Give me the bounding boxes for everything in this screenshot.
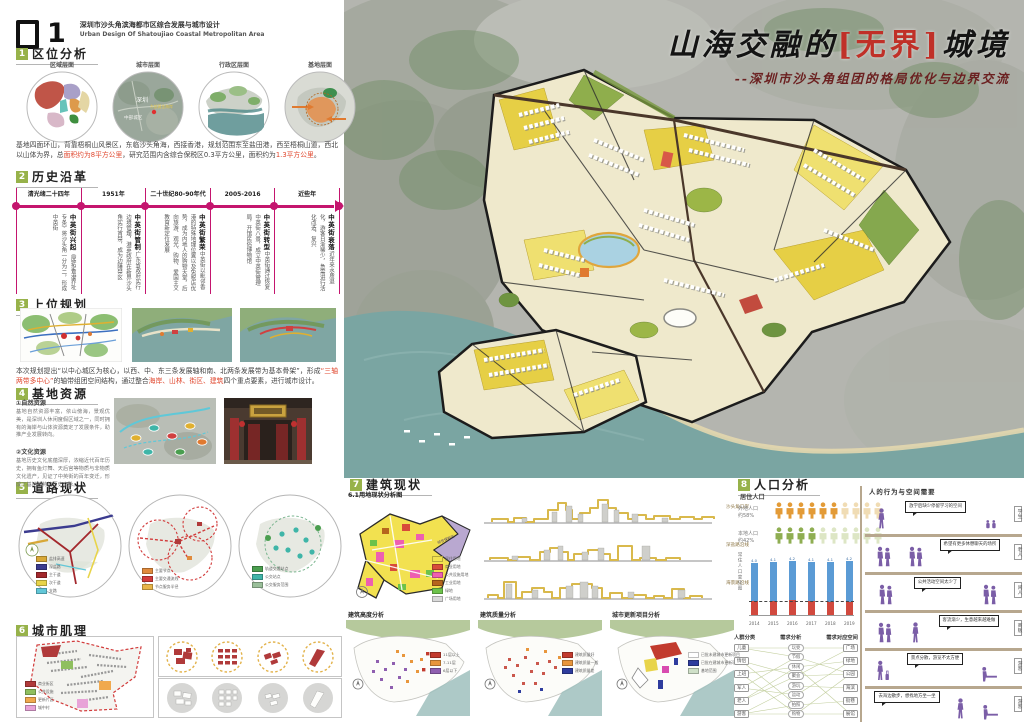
transit-map-legend: 轨道交通站点公交站点公交服务范围 <box>252 566 308 590</box>
network-demand-node: 玩耍 <box>788 644 805 652</box>
transit-legend-label: 公交服务范围 <box>265 582 288 588</box>
traffic-legend-swatch <box>142 584 153 590</box>
bar-registered <box>751 601 758 615</box>
landuse-legend-row: 绿地 <box>432 588 478 594</box>
resource-map <box>114 398 216 464</box>
bar-registered <box>770 601 777 615</box>
person-silhouette-icon <box>877 584 894 610</box>
network-space-node: 街巷 <box>843 697 858 705</box>
road-legend-label: 次干道 <box>49 580 61 586</box>
fabric-legend-swatch <box>25 705 36 711</box>
person-silhouette-icon <box>980 665 1000 686</box>
location-paragraph: 基地四面环山，背靠梧桐山风景区，东临沙头角海，西接香港，规划范围东至盐田港，西至… <box>16 140 338 160</box>
landuse-legend-label: 公共设施用地 <box>445 572 468 578</box>
quality-legend-swatch <box>562 660 573 666</box>
transit-legend-label: 公交站点 <box>265 574 281 580</box>
fabric-legend-label: 公共设施 <box>38 689 54 695</box>
quality-legend: 建筑质量好建筑质量一般建筑质量差 <box>562 652 604 676</box>
timeline-dot <box>141 202 149 210</box>
landuse-legend: 居住用地商业用地公共设施用地工业用地绿地广场用地 <box>432 556 478 604</box>
fabric-legend-label: 商业街区 <box>38 681 54 687</box>
bar-group: 4.0 <box>749 553 759 615</box>
north-arrow-icon <box>356 680 360 686</box>
fabric-pattern-3 <box>256 640 290 674</box>
pictogram-percent: 约58% <box>738 513 774 520</box>
upper-plan-paragraph-text: 四个重点要素，进行城市设计。 <box>223 377 318 385</box>
pictogram-label: 本地人口约42% <box>738 531 774 545</box>
fabric-legend-row: 更新片区 <box>25 697 75 703</box>
road-legend-row: 支路 <box>36 588 82 594</box>
landuse-legend-row: 广场用地 <box>432 596 478 602</box>
person-icon <box>829 527 840 548</box>
pictogram-group-name: 本地人口 <box>738 531 774 538</box>
network-space-node: 广场 <box>843 644 858 652</box>
network-demand-node: 拍照 <box>788 701 805 709</box>
road-legend-row: 盐排高速 <box>36 556 82 562</box>
road-legend-swatch <box>36 572 47 578</box>
landuse-legend-label: 工业用地 <box>445 580 461 586</box>
speech-bubble: 去海边散步，想找地方坐一坐 <box>874 691 939 703</box>
person-icon <box>818 502 829 523</box>
bar-group: 4.1 <box>825 553 835 615</box>
behavior-tag: 游客 <box>1014 696 1022 712</box>
renewal-legend-swatch <box>688 652 699 658</box>
quality-legend-row: 建筑质量好 <box>562 652 604 658</box>
network-space-node: 公园 <box>843 670 858 678</box>
person-silhouette-icon <box>875 546 892 572</box>
timeline-column: 2005-2016中英街转型中英街通过恢复中英街八景，成立中英街管理局，开馆民俗… <box>211 188 276 294</box>
temple-photo <box>224 398 312 464</box>
traffic-legend-swatch <box>142 568 153 574</box>
person-silhouette-icon <box>984 515 999 534</box>
road-legend-row: 次干道 <box>36 580 82 586</box>
bar-year-label: 2017 <box>806 621 816 626</box>
quality-legend-swatch <box>562 652 573 658</box>
elevation-strip-2 <box>482 530 722 564</box>
behavior-row: 去海边散步，想找地方坐一坐游客 <box>865 689 1022 723</box>
road-legend-swatch <box>36 588 47 594</box>
road-legend-row: 深盐路 <box>36 564 82 570</box>
elevation-strip-1 <box>482 492 722 526</box>
section-2-header: 2历史沿革 <box>16 168 98 188</box>
population-bar-chart: 常住人口变化图 4.04.14.24.14.14.2 2014201520162… <box>736 550 856 628</box>
road-legend-label: 主干道 <box>49 572 61 578</box>
road-legend-swatch <box>36 564 47 570</box>
bar-resident <box>751 563 758 600</box>
timeline-period: 清光绪二十四年 <box>17 188 81 203</box>
height-legend: 11层以上7-11层6层以下 <box>430 652 470 676</box>
timeline-dot <box>12 202 20 210</box>
timeline-column: 1951年中英街管制广东省政府实行边境管理，港英政府在新界沙头角实行宵禁，成为边… <box>82 188 147 294</box>
fabric-pattern-1 <box>165 640 199 674</box>
landuse-legend-label: 居住用地 <box>445 556 461 562</box>
location-paragraph-highlight: 面积约为8平方公里 <box>64 151 123 159</box>
traffic-legend-swatch <box>142 576 153 582</box>
fabric-legend-swatch <box>25 697 36 703</box>
behavior-row: 景点分散，游览不太方便游客 <box>865 651 1022 689</box>
transit-legend-row: 轨道交通站点 <box>252 566 308 572</box>
traffic-legend-row: 主要交通流线 <box>142 576 198 582</box>
speech-bubble: 景点分散，游览不太方便 <box>907 653 963 665</box>
speech-bubble: 客流渐少，生意越来越难做 <box>939 615 1000 627</box>
fabric-legend-swatch <box>25 689 36 695</box>
person-silhouette-icon <box>981 703 1001 723</box>
network-space-node: 海滨 <box>843 684 858 692</box>
analysis-title-1: 建筑高度分析 <box>348 610 384 619</box>
svg-text:东部黄金海岸: 东部黄金海岸 <box>150 104 173 109</box>
speech-bubble: 希望有更多休憩聊天的场所 <box>940 539 1001 551</box>
pictogram-group-name: 外地人口 <box>738 506 774 513</box>
bar-resident <box>846 561 853 602</box>
behavior-people: 放学后缺少停留学习的空间 <box>868 499 1007 534</box>
massing-1 <box>166 682 198 714</box>
massing-box <box>158 678 342 718</box>
bar-year-label: 2014 <box>749 621 759 626</box>
behavior-header: 人的行为与空间需要 <box>869 487 1022 496</box>
traffic-legend-row: 节点服务半径 <box>142 584 198 590</box>
timeline-era-name: 中英街管制 <box>133 214 141 251</box>
timeline-body: 中英街繁荣中英街以毗邻香港的特殊地理位置以及免税店优势，成为内地人的购物天堂，后… <box>148 214 207 292</box>
demand-network: 人群分类 需求分析 需求对应空间 儿童情侣上班军人老人游客 玩耍节假休闲聚会游玩… <box>734 633 858 721</box>
fabric-legend-row: 商业街区 <box>25 681 75 687</box>
height-legend-label: 6层以下 <box>443 668 457 674</box>
transit-legend-swatch <box>252 574 263 580</box>
timeline-period: 1951年 <box>82 188 146 203</box>
sheet-number-one: 1 <box>47 20 66 47</box>
renewal-legend-row: 已批在建城市更新项目 <box>688 660 734 666</box>
network-demand-node: 游玩 <box>788 682 805 690</box>
behavior-row: 公共活动空间太少了闲人 <box>865 575 1022 613</box>
upper-plan-thumb-1 <box>20 308 122 362</box>
bar-registered <box>846 602 853 615</box>
quality-legend-label: 建筑质量差 <box>575 668 594 674</box>
traffic-map-legend: 主要节点主要交通流线节点服务半径 <box>142 568 198 592</box>
height-legend-row: 7-11层 <box>430 660 470 666</box>
height-legend-swatch <box>430 652 441 658</box>
pictogram-label: 外地人口约58% <box>738 506 774 520</box>
bar-resident <box>789 561 796 600</box>
road-legend-label: 深盐路 <box>49 564 61 570</box>
timeline-body: 中英街兴起《展拓香港界址专条》将沙头角一分为二，形成中英街 <box>19 214 78 292</box>
behavior-tag: 游客 <box>1014 658 1022 674</box>
district-map <box>198 71 270 143</box>
fabric-legend-label: 城中村 <box>38 705 50 711</box>
chart-bars: 4.04.14.24.14.14.2 <box>749 553 854 616</box>
renewal-legend-label: 基地范围 <box>701 668 717 674</box>
timeline-era-name: 中英街繁荣 <box>198 214 206 251</box>
network-group-node: 情侣 <box>734 657 749 665</box>
landuse-legend-label: 商业用地 <box>445 564 461 570</box>
renewal-legend-row: 已批未建城市更新项目 <box>688 652 734 658</box>
upper-plan-paragraph: 本次规划提出“以中心城区为核心，以西、中、东三条发展轴和南、北两条发展带为基本骨… <box>16 366 338 386</box>
person-icon <box>840 527 851 548</box>
fabric-pattern-2 <box>210 640 244 674</box>
road-legend-label: 支路 <box>49 588 57 594</box>
traffic-legend-label: 节点服务半径 <box>155 584 178 590</box>
bar-resident <box>770 562 777 601</box>
chart-x-labels: 201420152016201720182019 <box>749 621 854 626</box>
person-icon <box>807 527 818 548</box>
fabric-pattern-4 <box>301 640 335 674</box>
quality-legend-row: 建筑质量差 <box>562 668 604 674</box>
behavior-rows: 放学后缺少停留学习的空间学生希望有更多休憩聊天的场所老人公共活动空间太少了闲人客… <box>865 499 1022 723</box>
timeline-column: 清光绪二十四年中英街兴起《展拓香港界址专条》将沙头角一分为二，形成中英街 <box>16 188 82 294</box>
bar-year-label: 2015 <box>768 621 778 626</box>
landuse-legend-row: 居住用地 <box>432 556 478 562</box>
person-icon <box>796 527 807 548</box>
massing-4 <box>302 682 334 714</box>
timeline-dot <box>77 202 85 210</box>
landuse-legend-row: 商业用地 <box>432 564 478 570</box>
height-legend-label: 11层以上 <box>443 652 460 658</box>
traffic-legend-row: 主要节点 <box>142 568 198 574</box>
person-icon <box>840 502 851 523</box>
network-demand-node: 聚会 <box>788 672 805 680</box>
location-paragraph-text: 。 <box>314 151 321 159</box>
person-icon <box>796 502 807 523</box>
road-legend-swatch <box>36 580 47 586</box>
resident-population-label: 居住人口 <box>740 492 765 501</box>
cultural-resource-item: ②文化资源 基地历史文化底蕴深厚，浓缩近代百年历史，拥有鱼灯舞、天后宫等物质与非… <box>16 447 110 489</box>
upper-plan-thumb-2 <box>132 308 232 362</box>
quality-legend-label: 建筑质量一般 <box>575 660 598 666</box>
network-demand-node: 休闲 <box>788 663 805 671</box>
behavior-tag: 老人 <box>1014 544 1022 560</box>
natural-resource-item: ①自然资源 基地自然资源丰富，依山傍海，景观优美，是深圳人休闲度假区域之一，同时… <box>16 398 110 440</box>
analysis-title-2: 建筑质量分析 <box>480 610 516 619</box>
bar-registered <box>827 602 834 615</box>
project-title-en: Urban Design Of Shatoujiao Coastal Metro… <box>80 31 265 38</box>
behavior-row: 放学后缺少停留学习的空间学生 <box>865 499 1022 537</box>
landuse-legend-label: 绿地 <box>445 588 453 594</box>
person-silhouette-icon <box>907 546 924 572</box>
elevation-strip-3 <box>482 568 722 602</box>
quality-legend-row: 建筑质量一般 <box>562 660 604 666</box>
person-icon <box>807 502 818 523</box>
person-silhouette-icon <box>876 622 893 648</box>
history-timeline: 清光绪二十四年中英街兴起《展拓香港界址专条》将沙头角一分为二，形成中英街1951… <box>16 188 340 294</box>
renewal-legend-row: 基地范围 <box>688 668 734 674</box>
fabric-legend-swatch <box>25 681 36 687</box>
location-circle-site: 基地层面 <box>280 60 360 147</box>
network-demand-node: 节假 <box>788 653 805 661</box>
city-map: 深圳 中部城区 东部黄金海岸 <box>112 71 184 143</box>
north-arrow-icon <box>488 680 492 686</box>
road-map-legend: 盐排高速深盐路主干道次干道支路 <box>36 556 82 596</box>
network-group-node: 老人 <box>734 697 749 705</box>
network-mid-column: 玩耍节假休闲聚会游玩运动拍照购物 <box>788 644 805 718</box>
timeline-column: 二十世纪80-90年代中英街繁荣中英街以毗邻香港的特殊地理位置以及免税店优势，成… <box>146 188 211 294</box>
height-legend-row: 6层以下 <box>430 668 470 674</box>
bar-resident <box>827 562 834 602</box>
north-arrow-icon <box>620 680 624 686</box>
landuse-map-label: 6.1用地现状分析图 <box>348 490 402 499</box>
person-icon <box>829 502 840 523</box>
bar-group: 4.1 <box>806 553 816 615</box>
bar-resident <box>808 562 815 601</box>
behavior-people: 客流渐少，生意越来越难做 <box>868 613 1007 648</box>
massing-row <box>159 679 341 717</box>
height-legend-swatch <box>430 668 441 674</box>
transit-legend-label: 轨道交通站点 <box>265 566 288 572</box>
timeline-era-name: 中英街兴起 <box>69 214 77 251</box>
location-circle-region: 区域层面 <box>22 60 102 147</box>
network-right-column: 广场绿地公园海滨街巷展馆 <box>843 644 858 718</box>
bar-group: 4.1 <box>768 553 778 615</box>
network-group-node: 上班 <box>734 670 749 678</box>
timeline-body: 中英街管制广东省政府实行边境管理，港英政府在新界沙头角实行宵禁，成为边陲禁区 <box>84 214 143 292</box>
analysis-title-3: 城市更新项目分析 <box>612 610 660 619</box>
person-icon <box>785 527 796 548</box>
poster-subtitle: --深圳市沙头角组团的格局优化与边界交流 <box>668 68 1010 87</box>
fabric-pattern-box <box>158 636 342 677</box>
transit-legend-row: 公交站点 <box>252 574 308 580</box>
bar-group: 4.2 <box>844 553 854 615</box>
height-legend-swatch <box>430 660 441 666</box>
timeline-axis <box>16 205 334 208</box>
project-title-cn: 深圳市沙头角滨海都市区综合发展与城市设计 <box>80 20 265 31</box>
behavior-panel: 人的行为与空间需要 放学后缺少停留学习的空间学生希望有更多休憩聊天的场所老人公共… <box>860 486 1022 722</box>
landuse-legend-label: 广场用地 <box>445 596 461 602</box>
network-demand-node: 运动 <box>788 691 805 699</box>
fabric-legend-row: 公共设施 <box>25 689 75 695</box>
renewal-legend: 已批未建城市更新项目已批在建城市更新项目基地范围 <box>688 652 734 676</box>
poster-board: 山海交融的[无界]城境 --深圳市沙头角组团的格局优化与边界交流 1 深圳市沙头… <box>0 0 1024 723</box>
network-group-node: 儿童 <box>734 644 749 652</box>
resource-texts: ①自然资源 基地自然资源丰富，依山傍海，景观优美，是深圳人休闲度假区域之一，同时… <box>16 398 110 496</box>
upper-plan-paragraph-text: 的轴带组团空间结构，通过整合 <box>54 377 149 385</box>
region-map <box>26 71 98 143</box>
fabric-legend-row: 城中村 <box>25 705 75 711</box>
transit-legend-swatch <box>252 566 263 572</box>
quality-legend-swatch <box>562 668 573 674</box>
timeline-era-name: 中英街衰落 <box>327 214 335 251</box>
bar-group: 4.2 <box>787 553 797 615</box>
location-circle-district: 行政区层面 <box>194 60 274 147</box>
behavior-row: 希望有更多休憩聊天的场所老人 <box>865 537 1022 575</box>
transit-legend-swatch <box>252 582 263 588</box>
timeline-columns: 清光绪二十四年中英街兴起《展拓香港界址专条》将沙头角一分为二，形成中英街1951… <box>16 188 340 294</box>
pictogram-percent: 约42% <box>738 538 774 545</box>
landuse-legend-swatch <box>432 564 443 570</box>
behavior-people: 公共活动空间太少了 <box>868 575 1007 610</box>
fabric-map-box: 商业街区公共设施更新片区城中村 <box>16 636 154 718</box>
speech-bubble: 放学后缺少停留学习的空间 <box>905 501 966 513</box>
speech-bubble: 公共活动空间太少了 <box>914 577 962 589</box>
landuse-legend-swatch <box>432 572 443 578</box>
timeline-dot <box>335 202 343 210</box>
behavior-row: 客流渐少，生意越来越难做商贩 <box>865 613 1022 651</box>
location-circle-city: 城市层面 深圳 中部城区 东部黄金海岸 <box>108 60 188 147</box>
poster-title: 山海交融的[无界]城境 --深圳市沙头角组团的格局优化与边界交流 <box>668 20 1010 87</box>
fabric-legend: 商业街区公共设施更新片区城中村 <box>25 681 75 713</box>
bar-year-label: 2016 <box>787 621 797 626</box>
person-silhouette-icon <box>875 660 890 686</box>
fabric-legend-label: 更新片区 <box>38 697 54 703</box>
network-demand-node: 购物 <box>788 710 805 718</box>
network-group-node: 游客 <box>734 710 749 718</box>
site-map <box>284 71 356 143</box>
upper-plan-paragraph-text: 本次规划提出“以中心城区为核心，以西、中、东三条发展轴和南、北两条发展带为基本骨… <box>16 367 321 375</box>
timeline-body: 中英街衰落近年来水质退化，游客日渐稀少，急需进行活化改造、复兴 <box>277 214 336 292</box>
person-icon <box>785 502 796 523</box>
network-space-node: 展馆 <box>843 710 858 718</box>
bar-registered <box>808 601 815 615</box>
behavior-people: 去海边散步，想找地方坐一坐 <box>868 689 1007 723</box>
person-icon <box>774 527 785 548</box>
chart-dash-line <box>749 601 854 602</box>
road-legend-row: 主干道 <box>36 572 82 578</box>
network-space-node: 绿地 <box>843 657 858 665</box>
road-legend-label: 盐排高速 <box>49 556 65 562</box>
traffic-legend-label: 主要节点 <box>155 568 171 574</box>
behavior-people: 景点分散，游览不太方便 <box>868 651 1007 686</box>
location-paragraph-text: ，研究范围内含综合保税区0.3平方公里，面积约为 <box>122 151 276 159</box>
timeline-period: 近些年 <box>275 188 339 203</box>
svg-text:深圳: 深圳 <box>136 96 148 104</box>
upper-plan-paragraph-highlight: 海岸、山林、街区、建筑 <box>149 377 224 385</box>
fabric-pattern-row <box>159 637 341 676</box>
timeline-period: 2005-2016 <box>211 188 275 203</box>
timeline-body: 中英街转型中英街通过恢复中英街八景，成立中英街管理局，开馆民俗博物馆 <box>213 214 272 292</box>
network-left-column: 儿童情侣上班军人老人游客 <box>734 644 749 718</box>
massing-2 <box>211 682 243 714</box>
network-columns: 儿童情侣上班军人老人游客 玩耍节假休闲聚会游玩运动拍照购物 广场绿地公园海滨街巷… <box>734 644 858 718</box>
person-silhouette-icon <box>981 584 998 610</box>
landuse-legend-swatch <box>432 556 443 562</box>
road-legend-swatch <box>36 556 47 562</box>
landuse-legend-swatch <box>432 580 443 586</box>
height-legend-label: 7-11层 <box>443 660 456 666</box>
upper-plan-thumb-3 <box>240 308 336 362</box>
landuse-legend-swatch <box>432 596 443 602</box>
landuse-legend-row: 公共设施用地 <box>432 572 478 578</box>
poster-title-main: 山海交融的[无界]城境 <box>668 20 1010 64</box>
timeline-column: 近些年中英街衰落近年来水质退化，游客日渐稀少，急需进行活化改造、复兴 <box>275 188 340 294</box>
behavior-tag: 闲人 <box>1014 582 1022 598</box>
renewal-legend-swatch <box>688 660 699 666</box>
renewal-legend-swatch <box>688 668 699 674</box>
person-icon <box>774 502 785 523</box>
height-legend-row: 11层以上 <box>430 652 470 658</box>
timeline-dot <box>206 202 214 210</box>
massing-3 <box>257 682 289 714</box>
landuse-legend-row: 工业用地 <box>432 580 478 586</box>
person-silhouette-icon <box>910 622 921 648</box>
network-group-node: 军人 <box>734 684 749 692</box>
person-silhouette-icon <box>876 508 887 534</box>
behavior-people: 希望有更多休憩聊天的场所 <box>868 537 1007 572</box>
behavior-tag: 商贩 <box>1014 620 1022 636</box>
bar-year-label: 2019 <box>844 621 854 626</box>
svg-text:中部城区: 中部城区 <box>124 114 143 121</box>
person-icon <box>818 527 829 548</box>
person-silhouette-icon <box>955 698 966 723</box>
traffic-legend-label: 主要交通流线 <box>155 576 178 582</box>
behavior-tag: 学生 <box>1014 506 1022 522</box>
quality-legend-label: 建筑质量好 <box>575 652 594 658</box>
chart-y-label: 常住人口变化图 <box>736 552 742 591</box>
timeline-dot <box>270 202 278 210</box>
bar-year-label: 2018 <box>825 621 835 626</box>
network-headers: 人群分类 需求分析 需求对应空间 <box>734 633 858 641</box>
landuse-legend-swatch <box>432 588 443 594</box>
transit-legend-row: 公交服务范围 <box>252 582 308 588</box>
location-paragraph-highlight: 1.3平方公里 <box>276 151 314 159</box>
timeline-era-name: 中英街转型 <box>262 214 270 251</box>
timeline-period: 二十世纪80-90年代 <box>146 188 210 203</box>
